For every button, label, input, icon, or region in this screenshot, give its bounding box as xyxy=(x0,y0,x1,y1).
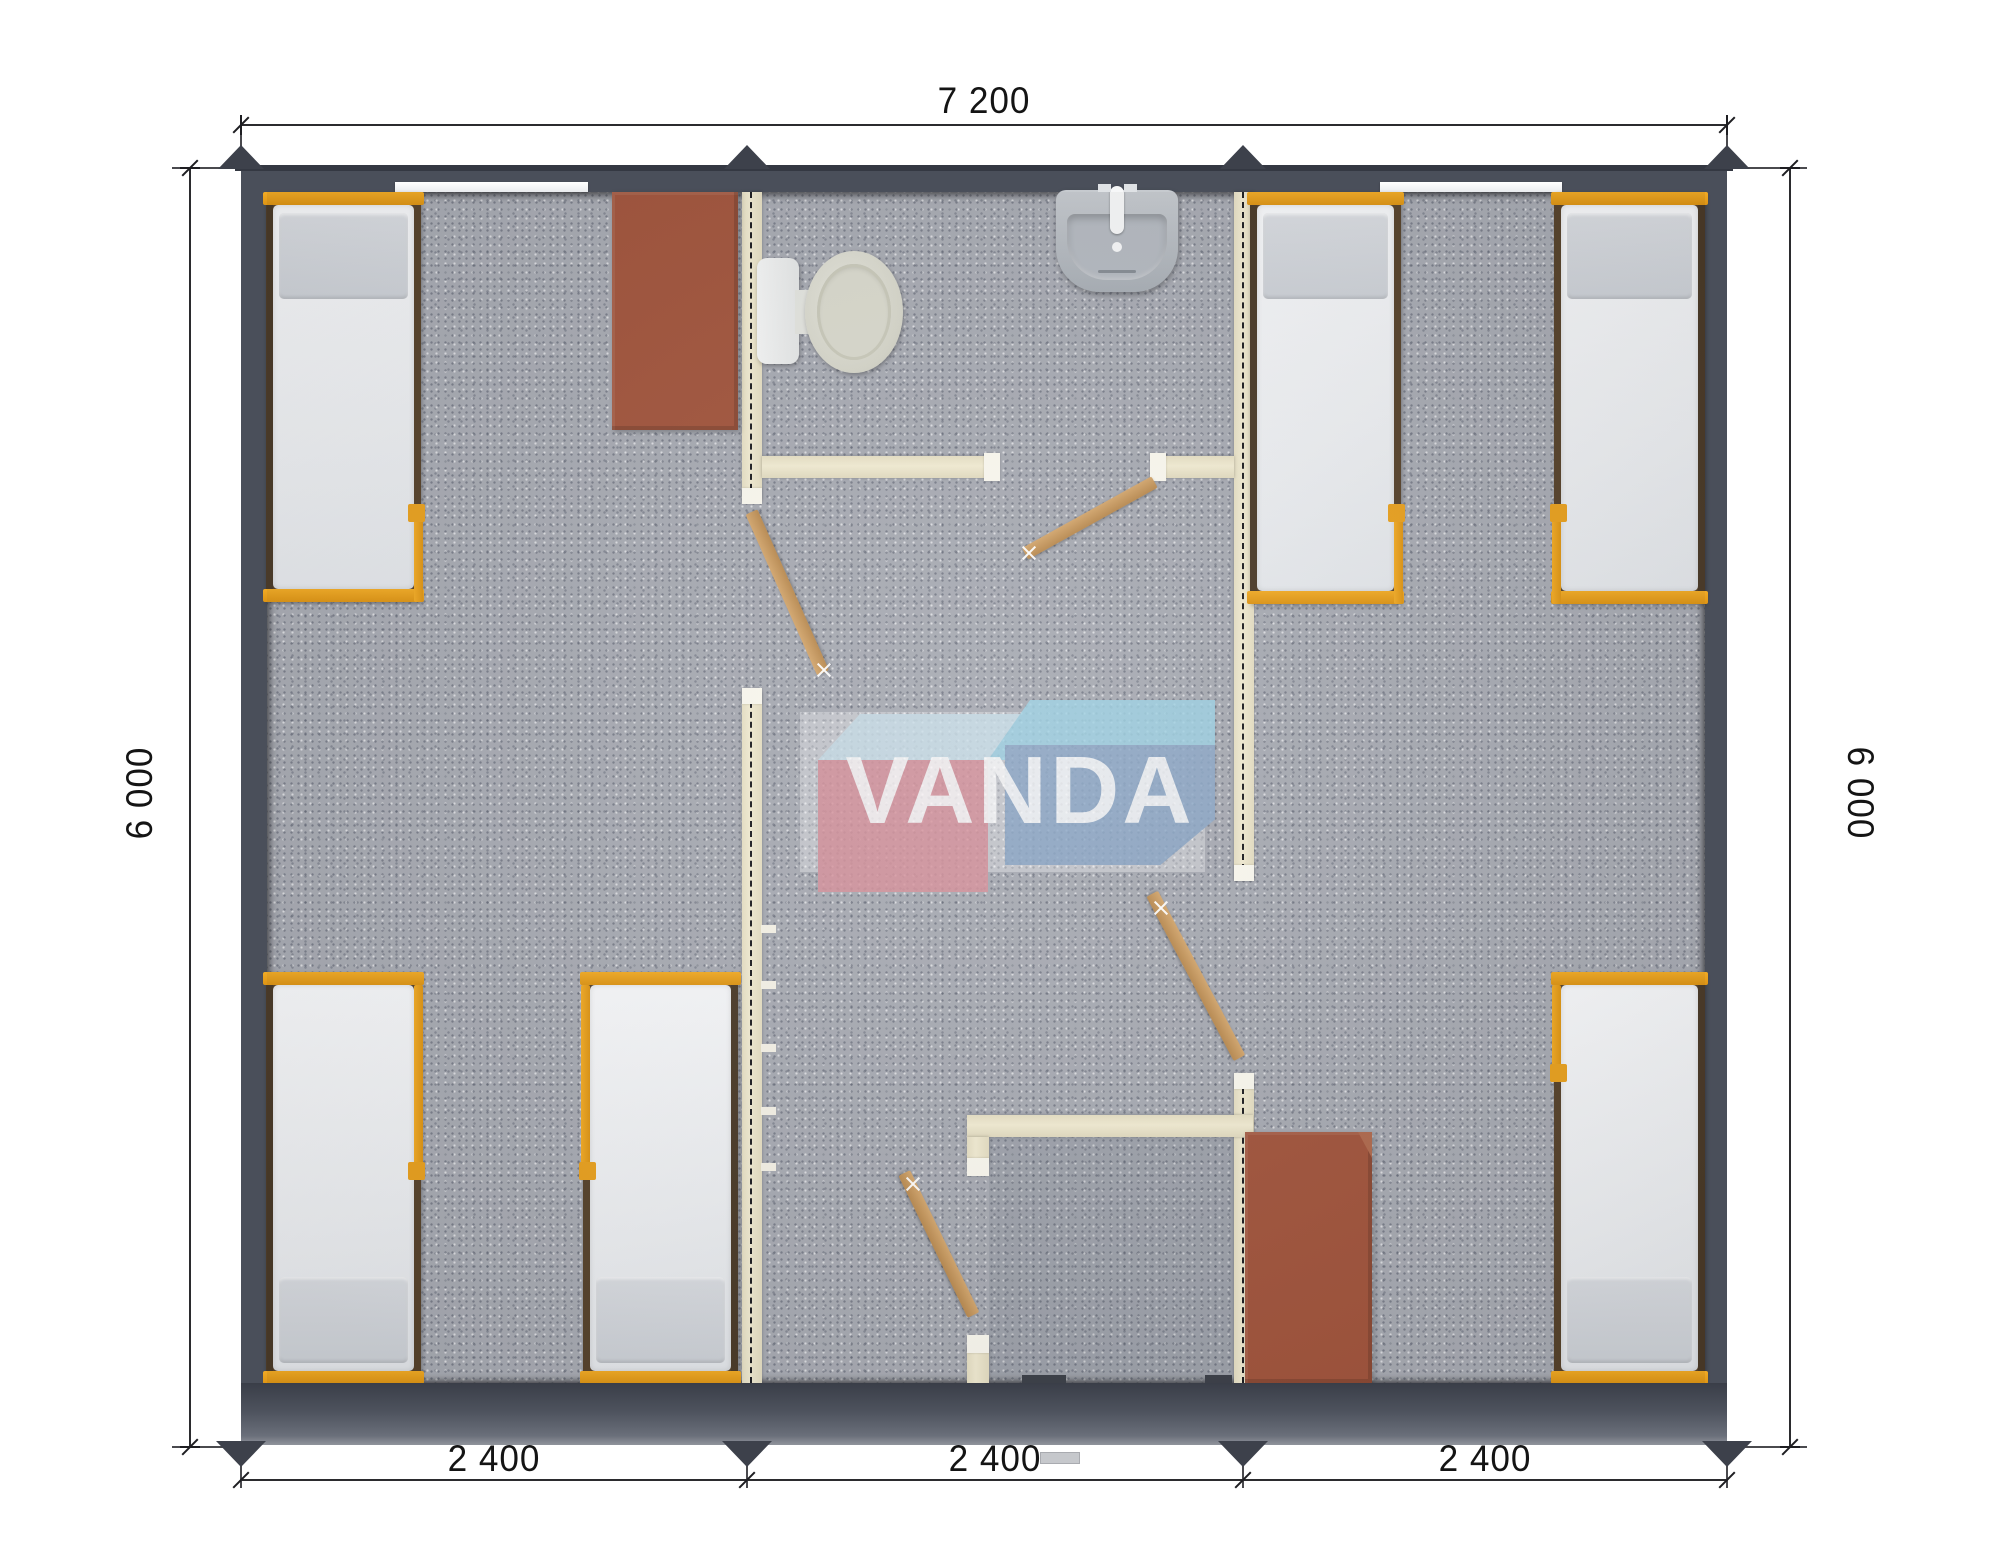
module-connector-tab xyxy=(724,145,770,169)
building-outline: VANDA xyxy=(241,165,1727,1445)
module-connector-tab xyxy=(722,1441,772,1467)
module-connector-tab xyxy=(1220,145,1266,169)
dim-line-left xyxy=(189,168,191,1447)
dim-label-height-right: 6 000 xyxy=(1839,651,1881,936)
module-connector-tab xyxy=(218,145,264,169)
floor-plan-canvas: 7 200 6 000 6 000 2 400 2 400 2 400 xyxy=(0,0,2000,1566)
dim-line-top xyxy=(241,124,1727,126)
wall-bottom-face xyxy=(241,1383,1727,1445)
dim-label-width-total: 7 200 xyxy=(794,80,1174,122)
module-connector-tab xyxy=(1702,1441,1752,1467)
module-connector-tab xyxy=(1704,145,1750,169)
dim-line-right xyxy=(1789,168,1791,1447)
dim-label-height-left: 6 000 xyxy=(119,651,161,936)
module-connector-tab xyxy=(216,1441,266,1467)
entrance-step xyxy=(1040,1452,1080,1464)
floor-vignette xyxy=(267,192,1705,1383)
module-connector-tab xyxy=(1218,1441,1268,1467)
